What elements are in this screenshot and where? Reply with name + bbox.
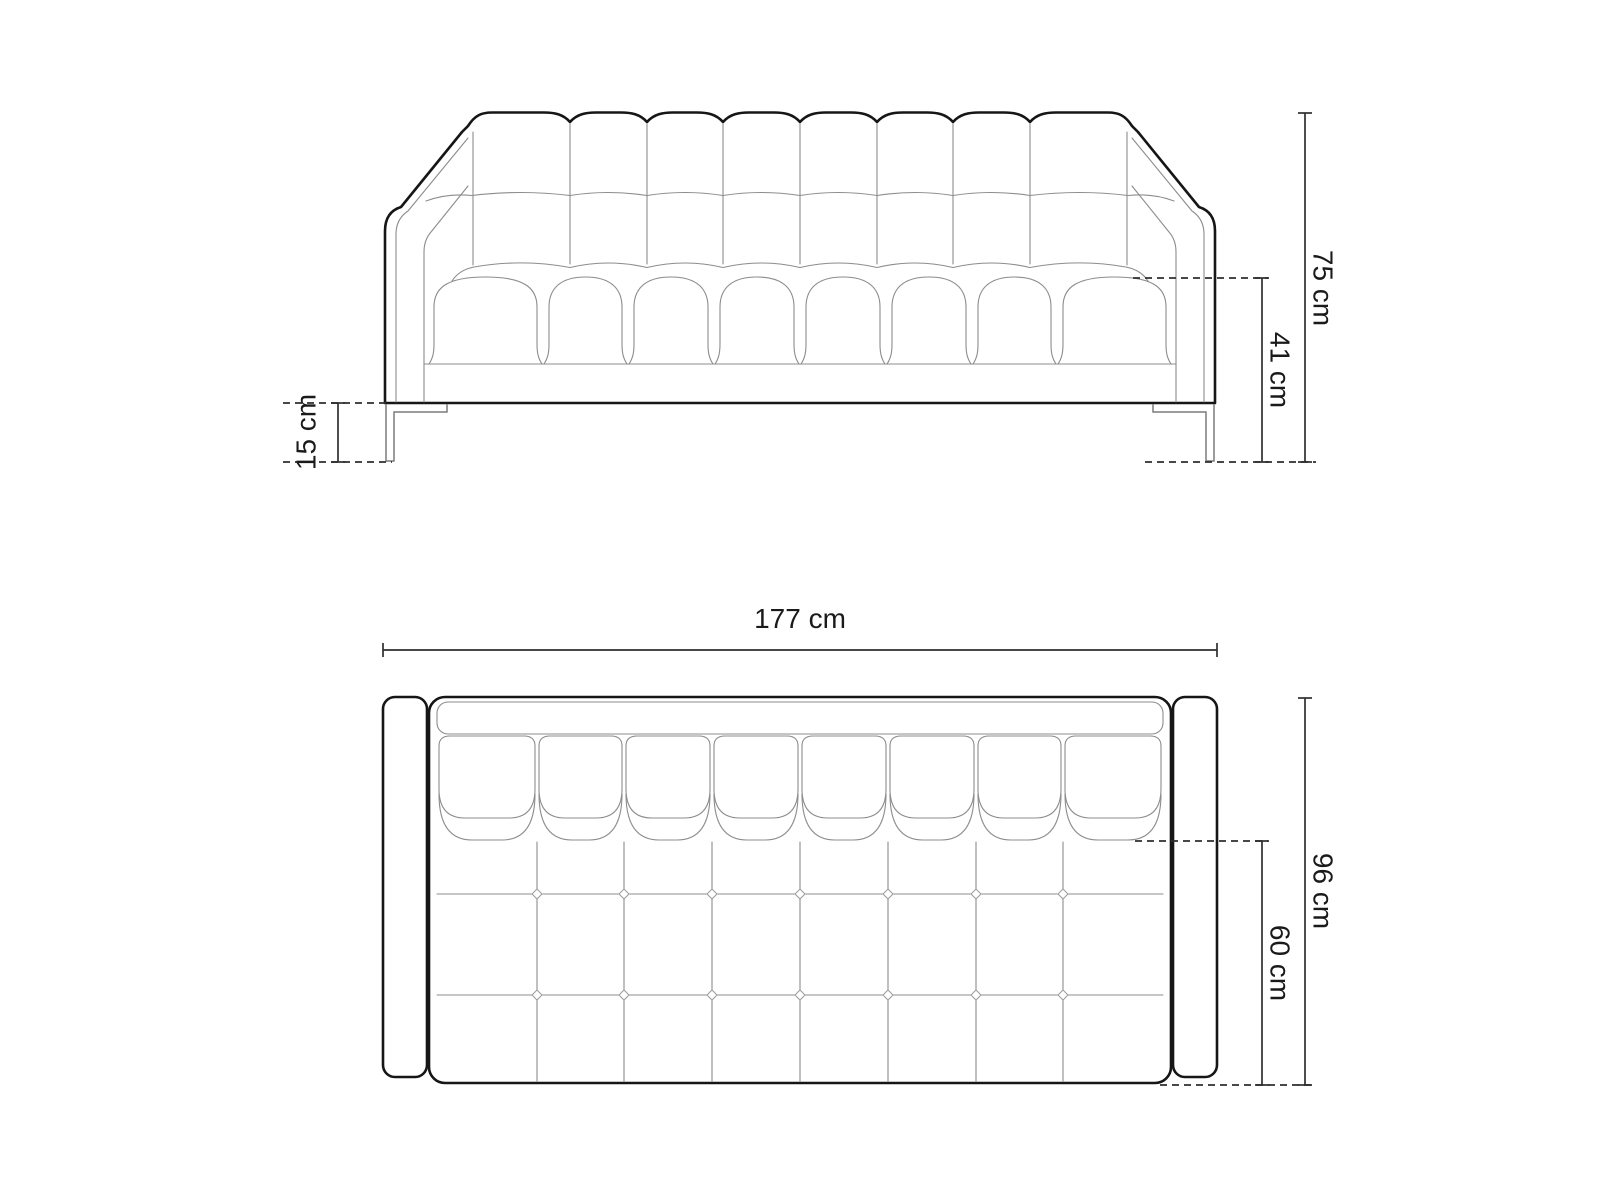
dimension-total-height: 75 cm	[1298, 113, 1339, 462]
total-height-label: 75 cm	[1308, 250, 1339, 326]
seat-height-label: 41 cm	[1265, 332, 1296, 408]
front-right-leg	[1153, 404, 1214, 461]
front-view: 15 cm 41 cm 75 cm	[283, 113, 1339, 471]
backrest-band	[437, 702, 1163, 734]
dimension-total-depth: 96 cm	[1298, 698, 1339, 1085]
right-arm-inner-face	[1132, 186, 1176, 402]
left-arm-inner-face	[424, 186, 468, 402]
seat-depth-label: 60 cm	[1265, 925, 1296, 1001]
dimension-seat-height: 41 cm	[1133, 278, 1316, 462]
right-arm-piping-seam	[1132, 138, 1204, 402]
top-view: 177 cm	[383, 603, 1339, 1085]
top-seat-grid-verticals	[537, 842, 1063, 1081]
left-arm-piping-seam	[396, 138, 468, 402]
dimension-total-width: 177 cm	[383, 603, 1217, 657]
backrest-cushion-scallops	[452, 263, 1148, 281]
dimension-leg-height: 15 cm	[283, 394, 392, 470]
top-backrest-scallops	[439, 794, 1161, 840]
total-depth-label: 96 cm	[1308, 853, 1339, 929]
seat-cushions	[429, 277, 1171, 364]
total-width-label: 177 cm	[754, 603, 846, 634]
leg-height-label: 15 cm	[291, 394, 322, 470]
dimension-seat-depth: 60 cm	[1135, 841, 1316, 1085]
top-left-arm	[383, 697, 427, 1077]
sofa-dimension-diagram: 15 cm 41 cm 75 cm 177 cm	[0, 0, 1600, 1200]
diagram-canvas: 15 cm 41 cm 75 cm 177 cm	[0, 0, 1600, 1200]
top-backrest-cushions	[439, 736, 1161, 818]
top-right-arm	[1173, 697, 1217, 1077]
front-left-leg	[386, 404, 447, 461]
